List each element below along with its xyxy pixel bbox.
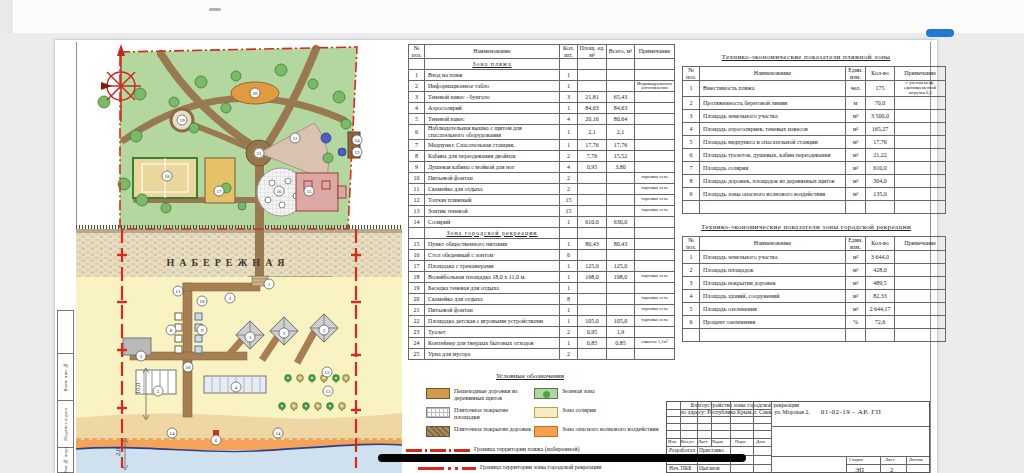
table-cell <box>578 304 607 315</box>
sheet-number: 2 <box>890 466 893 473</box>
table-cell: Стол обеденный с зонтом <box>425 249 560 260</box>
column-header: Площ. ед. м² <box>578 45 607 59</box>
table-cell <box>607 227 635 238</box>
green-zone-swatch <box>534 388 558 399</box>
beach-boundary-line-sample <box>406 449 470 452</box>
table-cell: торговая сеть <box>635 183 675 194</box>
table-cell: 21,22 <box>866 148 895 161</box>
table-cell: 22 <box>409 315 425 326</box>
blue-tree <box>338 148 346 156</box>
table-cell: 0,85 <box>607 337 635 348</box>
table-cell: 1 <box>560 139 578 150</box>
table-cell: 2 <box>683 96 700 109</box>
table-row: 6Площадь туалетов, душевых, кабин переод… <box>683 148 946 161</box>
table-cell: Площадь площадок <box>700 264 846 277</box>
legend-item: Зона солярия <box>534 407 674 418</box>
table-cell <box>607 205 635 216</box>
table-cell <box>895 109 946 122</box>
table-cell <box>607 81 635 92</box>
table-cell: 5 <box>683 303 700 316</box>
blue-tree <box>321 133 331 143</box>
table-row: 1Вход на пляж1 <box>409 70 675 81</box>
scroll-indicator[interactable] <box>926 29 954 37</box>
table-row: 1Вместимость пляжачел.175с учетом коэф. … <box>683 81 946 96</box>
column-header: Наименование <box>425 45 560 59</box>
table-cell: 84,63 <box>607 103 635 114</box>
table-cell: 0,95 <box>578 161 607 172</box>
table-cell: 17,76 <box>607 139 635 150</box>
table-cell: 14 <box>409 216 425 227</box>
table-cell: 80,64 <box>607 114 635 125</box>
table-cell: 1 <box>560 304 578 315</box>
table-cell: торговая сеть <box>635 293 675 304</box>
table-cell: Площадь солярия <box>700 161 846 174</box>
legend-label: Плиточное покрытие дорожек <box>454 426 534 433</box>
table-cell: Аэросолярий <box>425 103 560 114</box>
legend-item: Пешеходные дорожки из деревянных щитов <box>426 388 534 402</box>
wave-zone-swatch <box>534 426 558 437</box>
table-cell: 7 <box>409 139 425 150</box>
table-cell: 3 <box>683 277 700 290</box>
table-cell: м² <box>846 303 866 316</box>
stamp-name: Цыганов <box>699 465 720 471</box>
table-row: 3Теневой навес - бунгало321,8165,43 <box>409 92 675 103</box>
plan-marker-number: 23 <box>355 150 361 155</box>
table-cell: Туалет <box>425 326 560 337</box>
frame-cell <box>57 310 74 354</box>
table-row: 6Наблюдательная вышка с щитом для спасат… <box>409 125 675 139</box>
table-cell <box>895 135 946 148</box>
table-cell: 8 <box>409 150 425 161</box>
spec-table: № поз.НаименованиеКол. шт.Площ. ед. м²Вс… <box>408 44 656 360</box>
table-cell: 72,6 <box>866 316 895 329</box>
table-cell: 80,43 <box>607 238 635 249</box>
redaction-bar <box>378 454 746 462</box>
table-cell: торговая сеть <box>635 194 675 205</box>
table-cell: Индивидуального изготовления <box>635 81 675 92</box>
drag-handle-icon[interactable] <box>209 8 221 11</box>
table-cell: м² <box>846 148 866 161</box>
table-cell <box>560 59 578 70</box>
table-cell: торговая сеть <box>635 315 675 326</box>
table-cell <box>895 277 946 290</box>
table-cell <box>578 293 607 304</box>
table-row: 6Процент озеленения%72,6 <box>683 316 946 329</box>
stage-header: Стадия <box>849 457 863 462</box>
table-cell <box>895 161 946 174</box>
frame-label: Взам. инв. № <box>63 363 68 391</box>
table-cell: Площадь аэросоляриев, теневых навесов <box>700 122 846 135</box>
table-row: 7Медпункт. Спасательная станция.117,7617… <box>409 139 675 150</box>
stamp-col: Кол.уч <box>681 439 694 444</box>
table-cell: Питьевой фонтан <box>425 304 560 315</box>
recreation-boundary-line-sample <box>418 467 476 470</box>
table-row: 18Волейбольная площадка 18,0 х 11,0 м.11… <box>409 271 675 282</box>
table-row: 22Площадка детская с игровыми устройства… <box>409 315 675 326</box>
table-cell: 10 <box>409 172 425 183</box>
table-cell <box>578 205 607 216</box>
table-cell <box>846 329 866 342</box>
table-cell: 3 644,0 <box>866 251 895 264</box>
table-cell: 489,5 <box>866 277 895 290</box>
table-cell <box>895 122 946 135</box>
table-cell: с учетом коэф. единовременной загрузки 0… <box>895 81 946 96</box>
legend-label: Зеленая зона <box>562 388 674 395</box>
medpoint <box>123 338 151 355</box>
table-cell: 3 <box>409 92 425 103</box>
legend-label: Зона солярия <box>562 407 674 414</box>
table-cell: 1 <box>560 238 578 249</box>
umbrella-icon <box>335 377 337 379</box>
umbrella-icon <box>345 377 347 379</box>
legend-label: Пешеходные дорожки из деревянных щитов <box>454 388 534 402</box>
legend-title: Условные обозначения <box>400 372 660 380</box>
table-row: 2Информационное табло1Индивидуального из… <box>409 81 675 92</box>
table-cell: м² <box>846 122 866 135</box>
table-row: 2Площадь площадокм²428,0 <box>683 264 946 277</box>
table-cell: 4 <box>683 122 700 135</box>
frame-cell-inv: Инв. № подл. <box>57 447 74 473</box>
table-cell: Площадь зоны опасного волнового воздейст… <box>700 187 846 200</box>
table-cell: Наблюдательная вышка с щитом для спасате… <box>425 125 560 139</box>
table-cell <box>607 293 635 304</box>
title-block: Изм. Кол.уч Лист №док. Подп. Дата Разраб… <box>666 401 930 473</box>
legend-label: Граница территории зоны городской рекреа… <box>480 464 640 471</box>
stage-value: ЭП <box>855 466 864 473</box>
stage-header: Лист <box>885 457 894 462</box>
table-cell: 4 <box>683 290 700 303</box>
umbrella-icon <box>281 405 283 407</box>
table-cell: Площадка детская с игровыми устройствами <box>425 315 560 326</box>
table-cell: Площадь покрытия дорожек <box>700 277 846 290</box>
table-cell: Пункт общественного питания <box>425 238 560 249</box>
table-row: 8Кабина для переодевания двойная27,7615,… <box>409 150 675 161</box>
table-cell: 17,76 <box>866 135 895 148</box>
table-cell <box>578 348 607 359</box>
table-row: 8Площадь дорожек, площадок из деревянных… <box>683 174 946 187</box>
table-cell: 7 <box>683 161 700 174</box>
legend-line-item: Граница территории пляжа (набережной) <box>406 446 586 453</box>
table-cell: чел. <box>846 81 866 96</box>
table-cell: 9 <box>409 161 425 172</box>
umbrella-icon <box>287 377 289 379</box>
table-cell: м² <box>846 277 866 290</box>
frame-label: Подпись и дата <box>63 408 68 441</box>
table-row: 11Скамейка для отдыха2торговая сеть <box>409 183 675 194</box>
table-cell <box>846 200 866 213</box>
table-cell: 1 <box>560 103 578 114</box>
column-header: Наименование <box>700 67 846 81</box>
table-cell: 84,63 <box>578 103 607 114</box>
stamp-col: Подп. <box>735 439 746 444</box>
plan-marker-number: 17 <box>217 189 223 194</box>
plan-marker-number: 11 <box>176 289 181 294</box>
table-cell: Площадь земельного участка <box>700 109 846 122</box>
table-cell: 428,0 <box>866 264 895 277</box>
table-cell: Скамейка для отдыха <box>425 183 560 194</box>
table-row: 23Туалет20,951,9 <box>409 326 675 337</box>
table-cell: Площадь земельного участка <box>700 251 846 264</box>
table-cell: 82,33 <box>866 290 895 303</box>
table-cell: м² <box>846 109 866 122</box>
table-cell: Беседка теневая для отдыха <box>425 282 560 293</box>
table-cell <box>578 249 607 260</box>
table-cell <box>866 200 895 213</box>
table-row: 17Площадка с тренажерами1125,0125,0 <box>409 260 675 271</box>
legend-line-item: Граница территории зоны городской рекреа… <box>418 464 640 471</box>
table-cell <box>635 260 675 271</box>
table-cell: 1,9 <box>607 326 635 337</box>
workout-area <box>205 158 235 203</box>
table-cell <box>635 59 675 70</box>
legend-label: Зона опасного волнового воздействия <box>562 426 674 433</box>
legend-item: Плиточное покрытие площадки <box>426 407 534 421</box>
table-cell <box>578 282 607 293</box>
table-cell: Площадь зданий, сооружений <box>700 290 846 303</box>
table-row: 13Зонтик теневой15торговая сеть <box>409 205 675 216</box>
plan-marker-number: 12 <box>325 370 331 375</box>
table-cell: 15 <box>560 194 578 205</box>
table-cell: 3 500,0 <box>866 109 895 122</box>
table-cell: Процент озеленения <box>700 316 846 329</box>
table-cell: 19 <box>409 282 425 293</box>
table-cell: Площадь дорожек, площадок из деревянных … <box>700 174 846 187</box>
table-cell: 24 <box>409 337 425 348</box>
table-cell: Душевая кабина с мойкой для ног <box>425 161 560 172</box>
promenade-label: НАБЕРЕЖНАЯ <box>166 257 289 268</box>
table-cell: 1 <box>560 282 578 293</box>
table-cell <box>578 59 607 70</box>
table-cell <box>866 329 895 342</box>
table-cell: 17 <box>409 260 425 271</box>
table-cell: 2 <box>683 264 700 277</box>
section-row: Зона пляжа <box>409 59 675 70</box>
table-cell: 610,0 <box>578 216 607 227</box>
table-cell <box>578 183 607 194</box>
table-cell <box>635 249 675 260</box>
plan-marker-number: 18 <box>165 174 171 179</box>
table-cell: 21,81 <box>578 92 607 103</box>
table-cell <box>578 227 607 238</box>
table-cell: 6 <box>683 148 700 161</box>
table-cell: 1 <box>560 70 578 81</box>
column-header: № поз. <box>683 67 700 81</box>
table-cell <box>409 59 425 70</box>
table-cell: Площадка с тренажерами <box>425 260 560 271</box>
table-cell <box>635 282 675 293</box>
frame-cell-vzam: Взам. инв. № <box>57 353 74 401</box>
table-cell <box>635 326 675 337</box>
table-cell: м² <box>846 264 866 277</box>
table-cell: 165,27 <box>866 122 895 135</box>
column-header: Наименование <box>700 237 846 251</box>
table-cell: емкость 1,1м³ <box>635 337 675 348</box>
table-cell: 2 <box>560 183 578 194</box>
table-cell <box>607 172 635 183</box>
table-cell: 3 <box>683 109 700 122</box>
table-cell: 8 <box>683 174 700 187</box>
table-cell: Волейбольная площадка 18,0 х 11,0 м. <box>425 271 560 282</box>
table-cell: Теневой навес - бунгало <box>425 92 560 103</box>
table-cell: 20 <box>409 293 425 304</box>
stage-header: Листов <box>909 457 923 462</box>
column-header: Един. изм. <box>846 237 866 251</box>
table-cell: Теневой навес <box>425 114 560 125</box>
tile-area-swatch <box>426 407 450 418</box>
table-row: 21Питьевой фонтан1торговая сеть <box>409 304 675 315</box>
table-cell: 23 <box>409 326 425 337</box>
frame-label: Инв. № подл. <box>63 446 68 473</box>
table-cell <box>607 304 635 315</box>
table-cell <box>700 200 846 213</box>
table-row: 20Скамейка для отдыха8торговая сеть <box>409 293 675 304</box>
table-cell <box>607 194 635 205</box>
table-cell <box>895 251 946 264</box>
table-cell: 2,1 <box>578 125 607 139</box>
table-cell: 3 <box>560 92 578 103</box>
table-cell: м² <box>846 135 866 148</box>
table-cell: 17,76 <box>578 139 607 150</box>
tep-beach-title: Технико-экономические показатели пляжной… <box>682 53 930 61</box>
table-cell: 2 <box>560 150 578 161</box>
table-cell: Протяженность береговой линии <box>700 96 846 109</box>
table-cell: 175 <box>866 81 895 96</box>
table-cell: торговая сеть <box>635 172 675 183</box>
table-cell: 2 <box>560 326 578 337</box>
column-header: Кол-во <box>866 237 895 251</box>
table-cell <box>607 59 635 70</box>
table-row: 5Теневой навес420,1680,64 <box>409 114 675 125</box>
table-cell <box>895 303 946 316</box>
site-plan: 10,0 2,0 НАБЕРЕЖНАЯ 20192221181716152423… <box>76 40 402 473</box>
plan-marker-number: 20 <box>253 91 259 96</box>
umbrella-icon <box>329 405 331 407</box>
table-cell: 0,85 <box>578 337 607 348</box>
table-cell: Контейнер для твердых бытовых отходов <box>425 337 560 348</box>
header-row: № поз.НаименованиеЕдин. изм.Кол-воПримеч… <box>683 237 946 251</box>
legend-label: Граница территории пляжа (набережной) <box>474 446 586 453</box>
table-cell: 1 <box>683 251 700 264</box>
table-cell: 7,76 <box>578 150 607 161</box>
table-cell: 80,43 <box>578 238 607 249</box>
table-cell <box>635 70 675 81</box>
table-cell <box>578 81 607 92</box>
table-cell <box>635 150 675 161</box>
table-cell: 12 <box>409 194 425 205</box>
tile-path-swatch <box>426 426 450 437</box>
table-cell: 1 <box>560 125 578 139</box>
table-cell: 1 <box>560 315 578 326</box>
table-cell <box>635 216 675 227</box>
table-cell <box>635 161 675 172</box>
table-cell: 125,0 <box>578 260 607 271</box>
header-row: № поз.НаименованиеКол. шт.Площ. ед. м²Вс… <box>409 45 675 59</box>
table-cell: Вход на пляж <box>425 70 560 81</box>
tep-recreation-table: № поз.НаименованиеЕдин. изм.Кол-воПримеч… <box>682 236 930 342</box>
table-cell: 16 <box>409 249 425 260</box>
stamp-col: Лист <box>698 439 707 444</box>
table-cell: Кабина для переодевания двойная <box>425 150 560 161</box>
table-cell: 9 <box>683 187 700 200</box>
plan-marker-number: 10 <box>200 299 206 304</box>
table-cell: Медпункт. Спасательная станция. <box>425 139 560 150</box>
table-cell: 2 <box>409 81 425 92</box>
table-row: 7Площадь соляриям²610,0 <box>683 161 946 174</box>
umbrella-icon <box>311 377 313 379</box>
tep-recreation-title: Технико-экономические показатели зоны го… <box>682 223 930 231</box>
frame-cell-podpis: Подпись и дата <box>57 400 74 448</box>
table-cell: Информационное табло <box>425 81 560 92</box>
table-cell: м² <box>846 290 866 303</box>
column-header: Един. изм. <box>846 67 866 81</box>
table-cell: 1 <box>409 70 425 81</box>
table-cell: Площадь туалетов, душевых, кабин переоде… <box>700 148 846 161</box>
table-cell <box>409 227 425 238</box>
legend-item: Плиточное покрытие дорожек <box>426 426 534 437</box>
table-cell: торговая сеть <box>635 271 675 282</box>
legend-label: Плиточное покрытие площадки <box>454 407 534 421</box>
table-cell: торговая сеть <box>635 304 675 315</box>
plan-marker-number: 24 <box>355 138 361 143</box>
table-cell: 6 <box>683 316 700 329</box>
table-cell: 304,0 <box>866 174 895 187</box>
table-row: 15Пункт общественного питания180,4380,43 <box>409 238 675 249</box>
table-cell <box>683 329 700 342</box>
column-header: Примечание <box>895 237 946 251</box>
table-cell <box>895 148 946 161</box>
table-cell <box>635 114 675 125</box>
stamp-col: Изм. <box>668 439 677 444</box>
table-row: 10Питьевой фонтан2торговая сеть <box>409 172 675 183</box>
column-header: Примечание <box>895 67 946 81</box>
table-cell <box>895 174 946 187</box>
table-cell: 5 <box>683 135 700 148</box>
table-cell <box>607 348 635 359</box>
table-cell: 3,80 <box>607 161 635 172</box>
table-cell <box>607 282 635 293</box>
empty-row <box>683 200 946 213</box>
stamp-role: Разработал <box>669 447 695 453</box>
table-cell: м² <box>846 187 866 200</box>
table-cell <box>607 70 635 81</box>
column-header: № поз. <box>409 45 425 59</box>
table-row: 16Стол обеденный с зонтом6 <box>409 249 675 260</box>
table-cell <box>895 264 946 277</box>
table-cell: % <box>846 316 866 329</box>
table-cell: 1 <box>560 271 578 282</box>
table-cell: Скамейка для отдыха <box>425 293 560 304</box>
column-header: Кол-во <box>866 67 895 81</box>
table-cell: Вместимость пляжа <box>700 81 846 96</box>
table-cell: 15 <box>409 238 425 249</box>
table-cell: Топчан пляжный <box>425 194 560 205</box>
table-cell: 8 <box>560 293 578 304</box>
table-cell: м² <box>846 251 866 264</box>
doc-number: 01-02-19 - АР, ГП <box>771 408 931 416</box>
table-row: 3Площадь покрытия дорожекм²489,5 <box>683 277 946 290</box>
table-cell <box>635 92 675 103</box>
table-row: 9Площадь зоны опасного волнового воздейс… <box>683 187 946 200</box>
table-cell: 11 <box>409 183 425 194</box>
table-row: 4Площадь аэросоляриев, теневых навесовм²… <box>683 122 946 135</box>
table-cell <box>635 348 675 359</box>
table-cell: Площадь медпункта и спасательной станции <box>700 135 846 148</box>
table-cell <box>635 238 675 249</box>
stamp-col: №док. <box>712 439 724 444</box>
table-cell: м <box>846 96 866 109</box>
column-header: Всего, м² <box>607 45 635 59</box>
legend-item: Зеленая зона <box>534 388 674 399</box>
